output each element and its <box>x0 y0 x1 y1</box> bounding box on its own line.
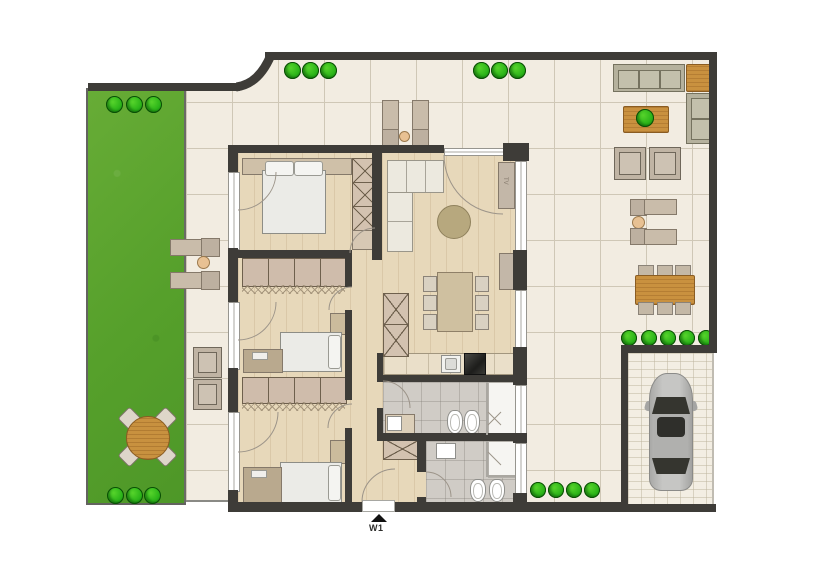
door-swing-arcs <box>0 0 826 575</box>
entrance-door-arc <box>362 469 395 502</box>
shower1-door-mark <box>488 412 501 425</box>
entrance-arrow-icon <box>371 514 387 522</box>
bedroom2-window-arc <box>238 302 276 340</box>
master-door-arc <box>350 228 375 253</box>
bathroom1-door-arc <box>383 381 410 408</box>
bedroom3-door-arc <box>328 404 352 428</box>
master-window-arc <box>238 172 276 210</box>
entrance-label: W1 <box>369 523 384 533</box>
shower2-door-mark <box>488 452 501 465</box>
bedroom2-door-arc <box>329 287 352 310</box>
floor-plan: TV <box>0 0 826 575</box>
terrace-door-arc <box>444 155 503 214</box>
bathroom2-door-arc <box>426 472 451 497</box>
bedroom3-window-arc <box>238 412 278 452</box>
